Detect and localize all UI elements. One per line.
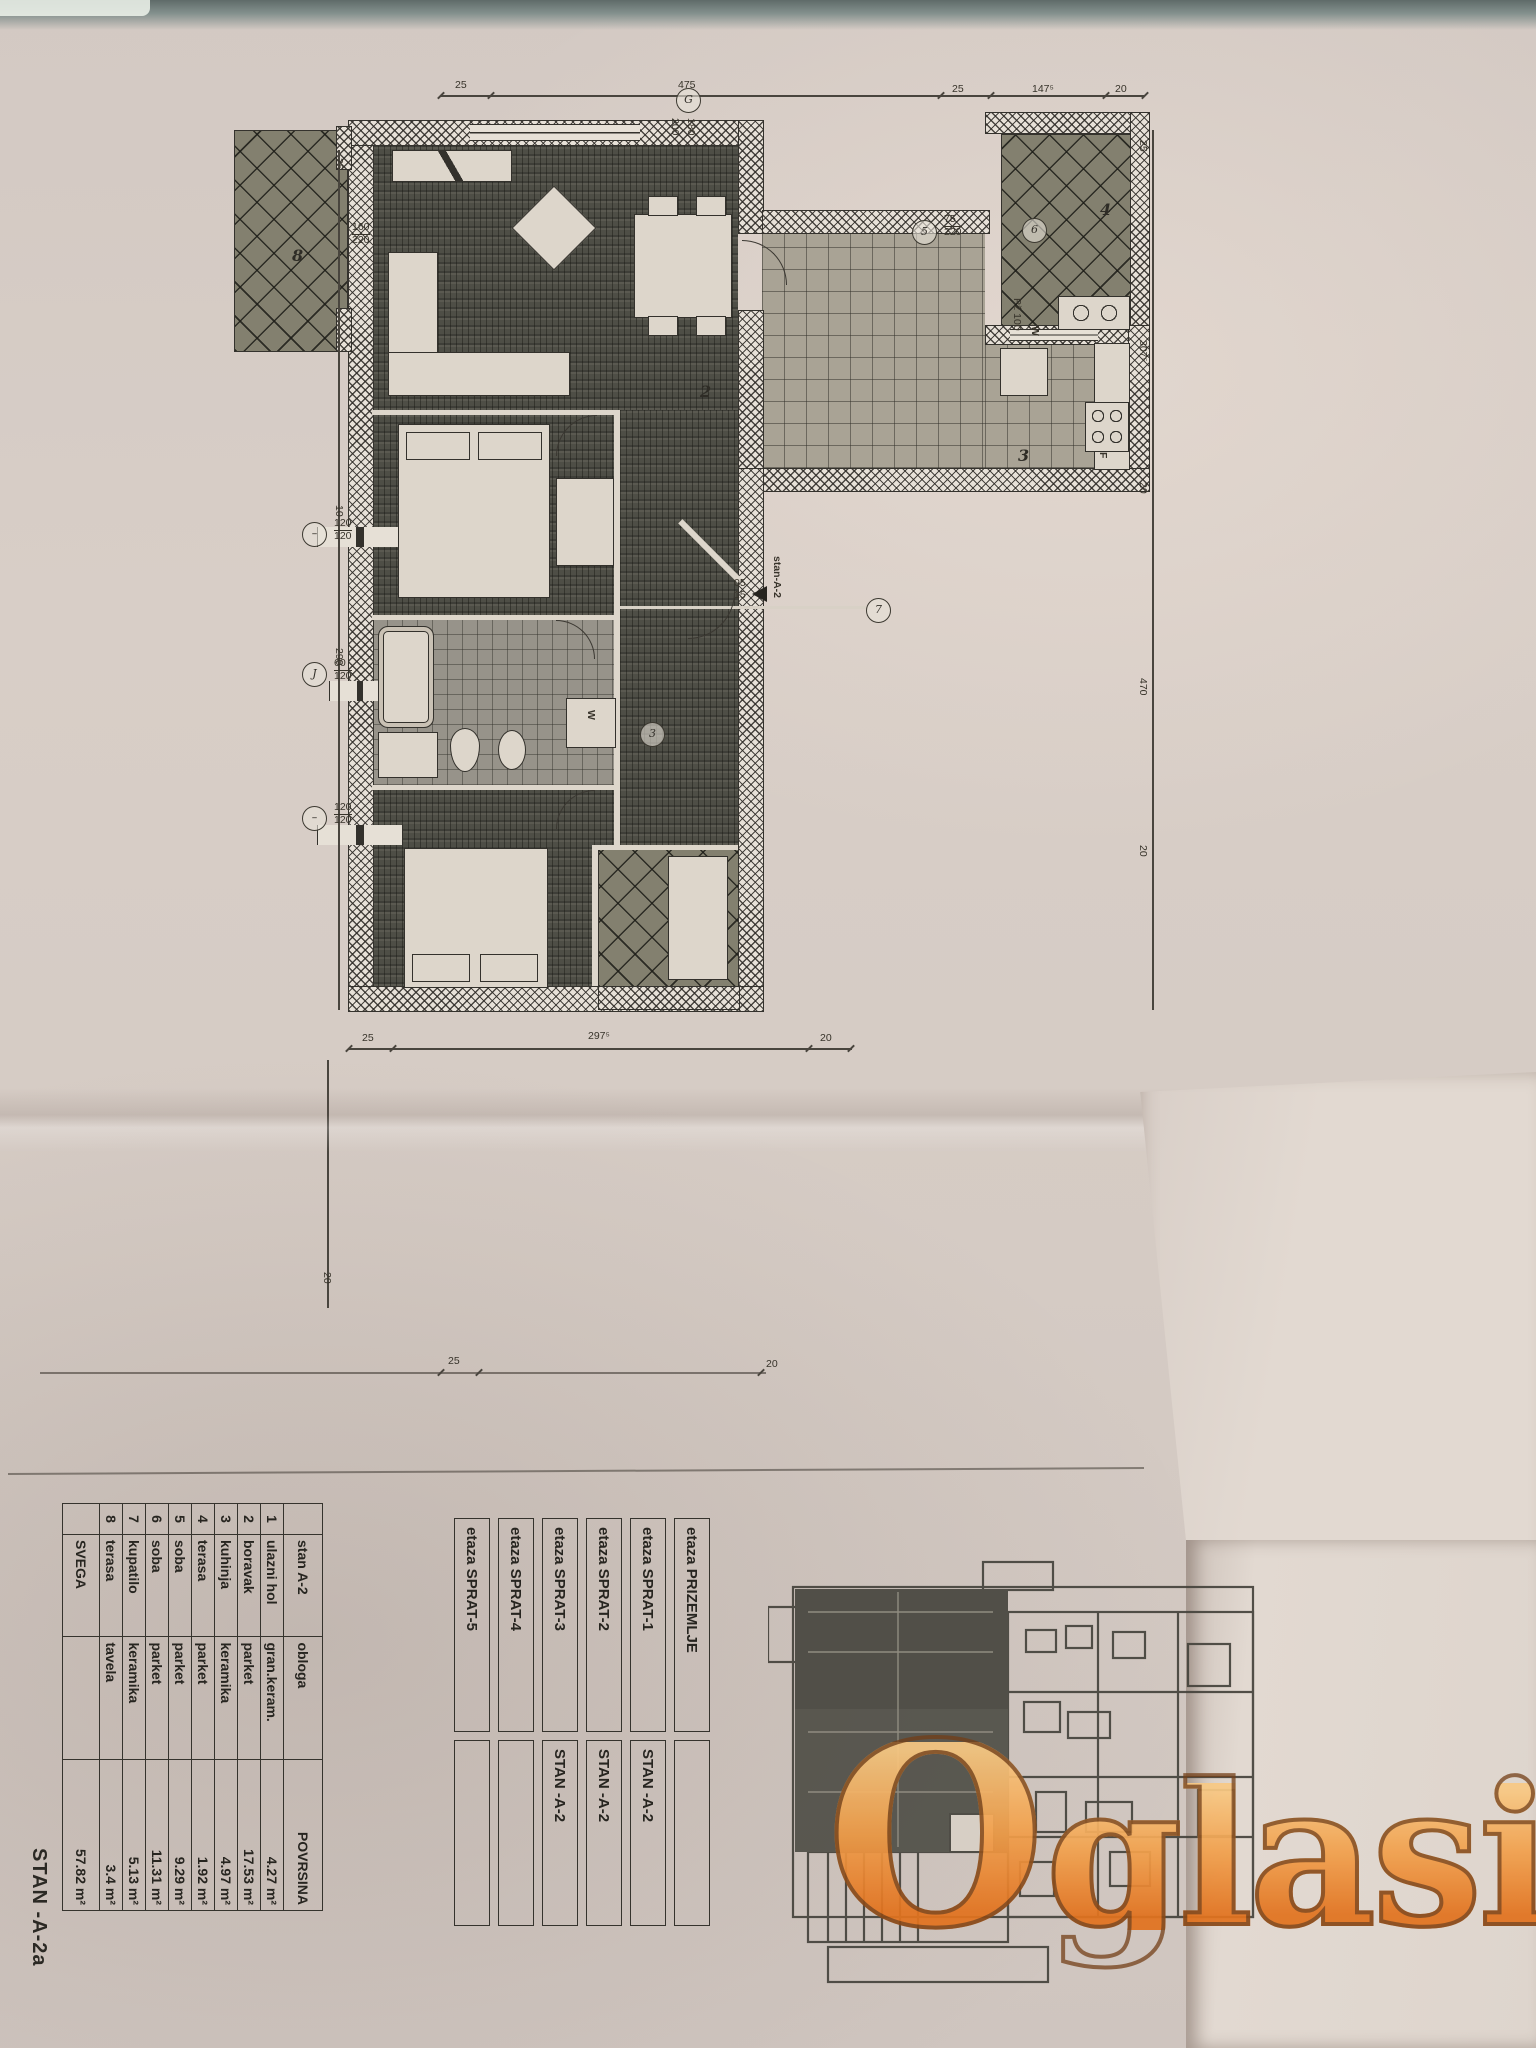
row-num: 3 [215, 1504, 238, 1535]
footer-blank [63, 1637, 100, 1760]
wardrobe [556, 478, 614, 566]
apartment-stamp-text: STAN -A-2a [28, 1848, 50, 1967]
row-finish: keramika [123, 1637, 146, 1760]
chair [648, 316, 678, 336]
row-name: boravak [238, 1535, 261, 1637]
header-blank [284, 1504, 323, 1535]
total-label: SVEGA [63, 1535, 100, 1637]
row-finish: parket [146, 1637, 169, 1760]
floor-stan [674, 1740, 710, 1926]
window-size: 160 [352, 222, 370, 233]
terrace-railing [598, 986, 740, 1010]
wall-segment [738, 310, 764, 470]
row-num: 8 [100, 1504, 123, 1535]
table-row: 4terasaparket1.92 m² [192, 1504, 215, 1911]
dim-label: 25 [952, 84, 964, 95]
chair [696, 196, 726, 216]
window [1010, 329, 1098, 341]
dimension-line [348, 1048, 852, 1050]
dim-label: 297⁵ [588, 1031, 610, 1042]
floor-label: etaza SPRAT-4 [498, 1518, 534, 1732]
row-finish: parket [169, 1637, 192, 1760]
table-row: 1ulazni holgran.keram.4.27 m² [261, 1504, 284, 1911]
row-finish: parket [238, 1637, 261, 1760]
dining-table [634, 214, 732, 318]
dim-label: 25 [333, 158, 344, 170]
row-num: 4 [192, 1504, 215, 1535]
dim-label: 470 [1137, 678, 1148, 696]
floor-stan: STAN -A-2 [630, 1740, 666, 1926]
mark: 3 [640, 722, 665, 747]
floor-label: etaza SPRAT-3 [542, 1518, 578, 1732]
dimension-line [440, 95, 1145, 97]
floor-stan [454, 1740, 490, 1926]
row-name: kupatilo [123, 1535, 146, 1637]
washer [566, 698, 616, 748]
room-number-living: 2 [700, 382, 711, 401]
wall-segment [985, 112, 1150, 134]
watermark-letter-o: O [826, 1742, 1046, 1931]
footer-blank [63, 1504, 100, 1535]
window-size: 120 [334, 518, 352, 529]
floor-stan: STAN -A-2 [586, 1740, 622, 1926]
window-size: 200 [669, 118, 680, 136]
room-number-terrace4: 4 [1100, 200, 1111, 219]
mark: 6 [1022, 218, 1047, 243]
total-area: 57.82 m² [63, 1760, 100, 1911]
row-name: kuhinja [215, 1535, 238, 1637]
room-number-terrace8: 8 [292, 246, 303, 265]
header-stan: stan A-2 [284, 1535, 323, 1637]
door-size: 75 [944, 214, 956, 225]
floor-label: etaza PRIZEMLJE [674, 1518, 710, 1732]
dimension-line [40, 1372, 766, 1374]
bidet [498, 730, 526, 770]
floor-list-table: etaza PRIZEMLJE etaza SPRAT-1STAN -A-2 e… [446, 1510, 718, 1934]
dim-tick [1141, 92, 1149, 100]
window-mark: – [302, 522, 327, 547]
window-size: 180 [685, 118, 696, 136]
pillow [412, 954, 470, 982]
floor-row: etaza SPRAT-2STAN -A-2 [586, 1518, 622, 1926]
row-name: terasa [192, 1535, 215, 1637]
sofa [388, 352, 570, 396]
row-num: 7 [123, 1504, 146, 1535]
row-name: soba [169, 1535, 192, 1637]
row-area: 1.92 m² [192, 1760, 215, 1911]
window [470, 124, 640, 141]
wall-segment [348, 120, 374, 1012]
table-row: 2boravakparket17.53 m² [238, 1504, 261, 1911]
row-num: 5 [169, 1504, 192, 1535]
wall-segment [738, 468, 764, 1012]
row-num: 1 [261, 1504, 284, 1535]
row-area: 5.13 m² [123, 1760, 146, 1911]
floor-row: etaza SPRAT-4 [498, 1518, 534, 1926]
stove [1085, 402, 1129, 452]
kitchen-sink [1058, 296, 1130, 330]
table-row: 3kuhinjakeramika4.97 m² [215, 1504, 238, 1911]
header-povrsina: POVRSINA [284, 1760, 323, 1911]
dim-label: 10 [333, 505, 344, 517]
dim-label: 25 [448, 1356, 460, 1367]
floor-row: etaza SPRAT-5 [454, 1518, 490, 1926]
watermark-text: glasi [1046, 1783, 1536, 1930]
terrace-8-floor [234, 130, 348, 352]
floor-row: etaza SPRAT-3STAN -A-2 [542, 1518, 578, 1926]
schedule-header-row: stan A-2 obloga POVRSINA [284, 1504, 323, 1911]
washing-machine [1000, 348, 1048, 396]
pillow [480, 954, 538, 982]
entry-arrow [752, 586, 767, 602]
mark: 7 [866, 598, 891, 623]
partition [372, 410, 620, 415]
dim-label: 20 [1137, 845, 1148, 857]
door-mark: 5 [912, 220, 937, 245]
window-size: 220 [352, 234, 370, 246]
dim-label: 147⁵ [1032, 84, 1054, 95]
table-row: 5sobaparket9.29 m² [169, 1504, 192, 1911]
entry-label: stan-A-2 [771, 556, 782, 598]
chair [696, 316, 726, 336]
dim-label: 20 [766, 1359, 778, 1370]
row-finish: gran.keram. [261, 1637, 284, 1760]
room-schedule-table: stan A-2 obloga POVRSINA 1ulazni holgran… [62, 1503, 323, 1911]
room-number-kitchen: 3 [1018, 446, 1029, 465]
oglasi-watermark: Oglasi.rs [826, 1742, 1536, 1931]
header-obloga: obloga [284, 1637, 323, 1760]
row-area: 3.4 m² [100, 1760, 123, 1911]
partition [372, 785, 620, 790]
row-finish: tavela [100, 1637, 123, 1760]
dim-label: 20 [820, 1033, 832, 1044]
partition [614, 410, 620, 845]
window-size: 120 [334, 530, 352, 542]
window [317, 527, 403, 547]
dim-label: 307⁵ [1137, 340, 1148, 362]
floor-label: etaza SPRAT-2 [586, 1518, 622, 1732]
floor-label: etaza SPRAT-1 [630, 1518, 666, 1732]
washer-label: W [585, 710, 596, 720]
window-size: 60 [334, 658, 346, 669]
partition [592, 845, 738, 850]
fridge-label: F [1097, 452, 1108, 458]
vanity-sink [378, 732, 438, 778]
table-row: 8terasatavela3.4 m² [100, 1504, 123, 1911]
floor-stan [498, 1740, 534, 1926]
pillow [478, 432, 542, 460]
window-mark: G [676, 88, 701, 113]
row-name: terasa [100, 1535, 123, 1637]
terrace-door-leaf [668, 856, 728, 980]
row-num: 2 [238, 1504, 261, 1535]
row-finish: keramika [215, 1637, 238, 1760]
row-area: 4.97 m² [215, 1760, 238, 1911]
floor-stan: STAN -A-2 [542, 1740, 578, 1926]
partition [592, 845, 598, 986]
dim-label: 25 [362, 1033, 374, 1044]
pillow [406, 432, 470, 460]
window-mark: – [302, 806, 327, 831]
chair [648, 196, 678, 216]
kitchen-note: Pž 100 [1011, 298, 1022, 331]
entry-dim: 05 [734, 578, 746, 589]
floor-row: etaza SPRAT-1STAN -A-2 [630, 1518, 666, 1926]
schedule-total-row: SVEGA 57.82 m² [63, 1504, 100, 1911]
row-area: 4.27 m² [261, 1760, 284, 1911]
window-size: 120 [334, 802, 352, 813]
row-finish: parket [192, 1637, 215, 1760]
window-mark: J [302, 662, 327, 687]
threshold-line [620, 606, 866, 609]
dim-label: 20 [1137, 482, 1148, 494]
floor-label: etaza SPRAT-5 [454, 1518, 490, 1732]
window-size: 120 [334, 670, 352, 682]
wall-segment [762, 468, 1150, 492]
row-name: ulazni hol [261, 1535, 284, 1637]
dim-label: 25 [1137, 140, 1148, 152]
dim-label: 25 [455, 80, 467, 91]
entry-dim: 15 [734, 590, 746, 601]
apartment-stamp: STAN -A-2a [28, 1848, 49, 1967]
dimension-line [1152, 130, 1154, 1010]
partition [372, 615, 620, 620]
row-name: soba [146, 1535, 169, 1637]
window [317, 825, 403, 845]
floor-plan-drawing: 25 475 25 147⁵ 20 25 297⁵ 20 25 20 25 10… [0, 0, 1536, 1100]
wall-segment [738, 120, 764, 234]
window-size: 120 [334, 814, 352, 826]
table-row: 6sobaparket11.31 m² [146, 1504, 169, 1911]
row-num: 6 [146, 1504, 169, 1535]
row-area: 11.31 m² [146, 1760, 169, 1911]
dim-label: 20 [321, 1272, 332, 1284]
kitchen-floor [762, 232, 985, 468]
bathtub [378, 626, 434, 728]
underlying-sheet-edge [1128, 1072, 1536, 1572]
corridor-floor [620, 410, 738, 845]
table-row: 7kupatilokeramika5.13 m² [123, 1504, 146, 1911]
floor-row: etaza PRIZEMLJE [674, 1518, 710, 1926]
dim-tick [847, 1045, 855, 1053]
washer-label: W [1029, 326, 1040, 336]
door-size: 220 [944, 226, 962, 238]
row-area: 17.53 m² [238, 1760, 261, 1911]
dim-label: 20 [1115, 84, 1127, 95]
sideboard [392, 150, 512, 182]
row-area: 9.29 m² [169, 1760, 192, 1911]
dimension-line [338, 150, 340, 1010]
